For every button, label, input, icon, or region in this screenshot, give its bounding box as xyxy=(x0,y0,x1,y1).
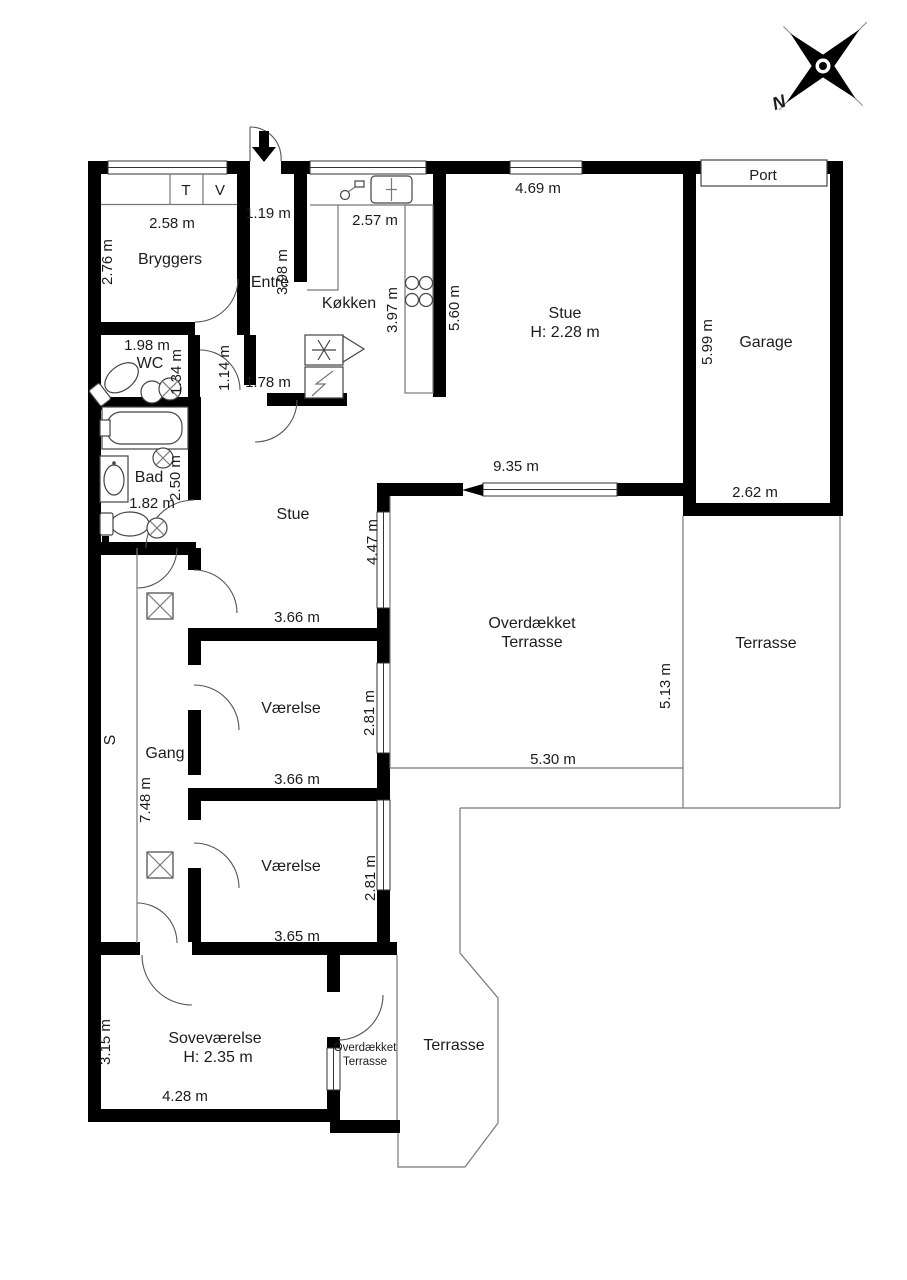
room-garage: Garage xyxy=(739,334,792,351)
dim-v2-bottom: 3.65 m xyxy=(274,928,320,945)
faucet-icon xyxy=(341,181,365,200)
room-stue-north: Stue xyxy=(549,305,582,322)
dim-stue-width: 4.69 m xyxy=(515,180,561,197)
room-sovevaerelse: Soveværelse xyxy=(168,1030,261,1047)
dim-ot-east-bottom: 5.30 m xyxy=(530,751,576,768)
garage-door: Port xyxy=(701,160,827,186)
room-ot-east-line2: Terrasse xyxy=(501,634,562,651)
dim-stue-depth: 5.60 m xyxy=(446,285,463,331)
dim-kokken-width: 2.57 m xyxy=(352,212,398,229)
room-ot-south-line2: Terrasse xyxy=(343,1056,387,1068)
dim-v1-top: 3.66 m xyxy=(274,609,320,626)
bath-sink-icon xyxy=(100,456,128,502)
dim-gang-length: 7.48 m xyxy=(137,777,154,823)
crossed-box-symbol xyxy=(147,593,173,619)
room-vaerelse-north: Værelse xyxy=(261,700,321,717)
stue-ceiling-height: H: 2.28 m xyxy=(530,324,599,341)
cabinet-v-label: V xyxy=(215,182,225,199)
stove-icon xyxy=(406,277,433,307)
crossed-box-symbol xyxy=(147,852,173,878)
room-wc: WC xyxy=(137,355,164,372)
floor-plan-page: Port xyxy=(0,0,907,1280)
kitchen-sink-icon xyxy=(371,176,412,203)
dim-sove-depth: 3.15 m xyxy=(97,1019,114,1065)
bathtub-icon xyxy=(100,407,188,449)
dim-bryggers-depth: 2.76 m xyxy=(99,239,116,285)
room-ot-east-line1: Overdækket xyxy=(488,615,576,632)
port-label: Port xyxy=(749,167,777,184)
dim-ot-east-right: 5.13 m xyxy=(657,663,674,709)
floor-drain-icon xyxy=(147,518,167,538)
sove-ceiling-height: H: 2.35 m xyxy=(183,1049,252,1066)
dim-stue-mid-window: 4.47 m xyxy=(364,519,381,565)
room-terrasse-east: Terrasse xyxy=(735,635,796,652)
terrace-outlines xyxy=(137,496,840,1167)
compass-rose-icon: N xyxy=(740,0,907,149)
dim-wc-width: 1.98 m xyxy=(124,337,170,354)
electrical-panel-icon xyxy=(305,367,343,398)
sliding-door-arrow-icon xyxy=(462,484,483,496)
dim-garage-width: 2.62 m xyxy=(732,484,778,501)
dim-hall-opening: 1.78 m xyxy=(245,374,291,391)
dim-garage-depth: 5.99 m xyxy=(699,319,716,365)
pipe-marker xyxy=(102,536,109,543)
room-ot-south-line1: Overdækket xyxy=(334,1042,397,1054)
room-kokken: Køkken xyxy=(322,295,376,312)
room-bad: Bad xyxy=(135,469,163,486)
floor-plan: Port xyxy=(0,0,907,1280)
room-stue-mid: Stue xyxy=(277,506,310,523)
room-skab: S xyxy=(102,735,119,746)
dim-hall-width: 1.14 m xyxy=(216,345,233,391)
bath-toilet-icon xyxy=(100,512,149,536)
dim-sove-width: 4.28 m xyxy=(162,1088,208,1105)
dim-entre-width: 1.19 m xyxy=(245,205,291,222)
cabinet-t-label: T xyxy=(181,182,190,199)
dim-wc-depth: 1.34 m xyxy=(168,349,185,395)
dim-v1-right: 2.81 m xyxy=(361,690,378,736)
dim-ot-east-top: 9.35 m xyxy=(493,458,539,475)
room-entre: Entre xyxy=(251,274,289,291)
room-vaerelse-south: Værelse xyxy=(261,858,321,875)
dim-bad-width: 1.82 m xyxy=(129,495,175,512)
dim-bryggers-width: 2.58 m xyxy=(149,215,195,232)
room-gang: Gang xyxy=(145,745,184,762)
room-bryggers: Bryggers xyxy=(138,251,202,268)
room-terrasse-south: Terrasse xyxy=(423,1037,484,1054)
fridge-freezer-icon xyxy=(305,335,364,365)
dim-kokken-depth: 3.97 m xyxy=(384,287,401,333)
walls xyxy=(88,161,843,1133)
dim-v1-bottom: 3.66 m xyxy=(274,771,320,788)
dim-v2-right: 2.81 m xyxy=(362,855,379,901)
